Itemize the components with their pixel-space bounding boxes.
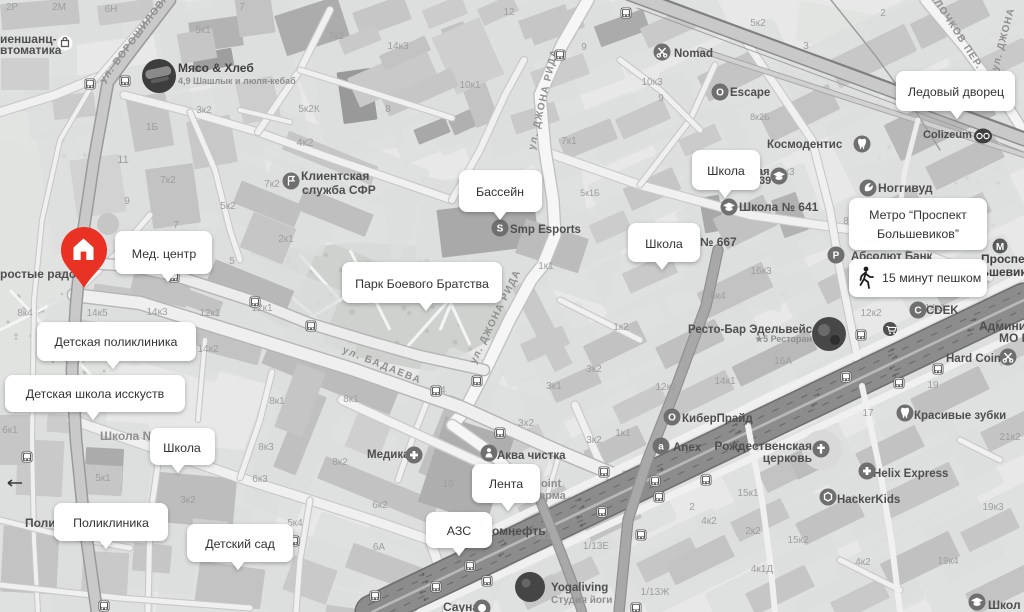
- svg-text:3к1: 3к1: [546, 381, 562, 392]
- svg-text:16А: 16А: [774, 356, 792, 367]
- svg-text:Детская поликлиника: Детская поликлиника: [55, 335, 178, 349]
- svg-text:HackerKids: HackerKids: [837, 494, 900, 506]
- svg-text:9: 9: [581, 42, 587, 53]
- svg-text:Космодентис: Космодентис: [767, 139, 843, 151]
- svg-text:4,9 Шашлык и люля-кебаб: 4,9 Шашлык и люля-кебаб: [178, 76, 296, 86]
- svg-text:4к2: 4к2: [296, 137, 313, 149]
- svg-text:М: М: [996, 242, 1004, 253]
- svg-text:1к1: 1к1: [538, 261, 554, 272]
- svg-text:10к3: 10к3: [641, 77, 662, 88]
- svg-text:Smp Esports: Smp Esports: [510, 224, 581, 236]
- svg-text:12к2: 12к2: [860, 308, 881, 319]
- svg-text:втоматика: втоматика: [0, 43, 62, 57]
- svg-text:11: 11: [117, 154, 128, 166]
- svg-text:5: 5: [229, 256, 235, 267]
- svg-text:Детский сад: Детский сад: [205, 537, 275, 551]
- svg-text:Студия йоги: Студия йоги: [551, 595, 612, 606]
- svg-text:Большевиков”: Большевиков”: [877, 227, 959, 241]
- svg-text:Школ: Школ: [988, 598, 1021, 612]
- svg-text:КиберПрайд: КиберПрайд: [682, 413, 753, 425]
- svg-text:oint: oint: [541, 478, 561, 490]
- svg-text:Бассейн: Бассейн: [476, 185, 524, 199]
- svg-text:Парк Боевого Братства: Парк Боевого Братства: [355, 277, 489, 291]
- svg-text:Ледовый дворец: Ледовый дворец: [908, 85, 1004, 99]
- svg-text:O: O: [668, 413, 676, 424]
- svg-text:19к4: 19к4: [937, 556, 958, 567]
- svg-text:Nomad: Nomad: [674, 48, 713, 60]
- svg-text:6к1: 6к1: [2, 425, 18, 436]
- svg-text:Клиентская: Клиентская: [301, 169, 369, 183]
- svg-text:Ноггивуд: Ноггивуд: [878, 181, 933, 195]
- svg-text:Школа: Школа: [645, 237, 683, 251]
- svg-text:9: 9: [124, 196, 130, 207]
- svg-text:8к4: 8к4: [17, 308, 33, 319]
- svg-text:6к2: 6к2: [372, 500, 388, 511]
- svg-text:Детская школа исскуств: Детская школа исскуств: [26, 387, 165, 401]
- svg-text:2М: 2М: [52, 2, 66, 13]
- svg-text:O: O: [716, 88, 724, 99]
- svg-text:Мясо & Хлеб: Мясо & Хлеб: [178, 61, 254, 75]
- svg-text:2: 2: [880, 8, 886, 19]
- svg-text:12к2: 12к2: [655, 382, 676, 393]
- svg-text:Colizeum: Colizeum: [923, 129, 972, 141]
- svg-text:4к2: 4к2: [701, 516, 717, 527]
- svg-text:14к5: 14к5: [86, 308, 107, 319]
- svg-text:5к1: 5к1: [195, 25, 211, 36]
- svg-text:1к1: 1к1: [615, 428, 631, 439]
- svg-text:7к2: 7к2: [160, 175, 176, 186]
- svg-text:CDEK: CDEK: [926, 305, 959, 317]
- svg-text:Helix Express: Helix Express: [873, 468, 948, 480]
- svg-text:5к1Б: 5к1Б: [580, 188, 600, 198]
- svg-text:a: a: [658, 442, 664, 453]
- svg-text:4к1Д: 4к1Д: [751, 564, 773, 575]
- svg-text:1/13Ж: 1/13Ж: [641, 587, 670, 598]
- svg-text:Escape: Escape: [730, 87, 770, 99]
- svg-text:14к3: 14к3: [146, 307, 167, 318]
- svg-text:№ 667: № 667: [700, 235, 737, 249]
- svg-text:14к3: 14к3: [387, 41, 408, 52]
- svg-text:19к3: 19к3: [982, 502, 1003, 513]
- svg-text:3х2: 3х2: [518, 418, 535, 429]
- svg-text:14к1: 14к1: [714, 376, 735, 387]
- svg-text:МО Н: МО Н: [999, 331, 1024, 345]
- svg-text:Лента: Лента: [489, 477, 523, 491]
- svg-text:Красивые зубки: Красивые зубки: [914, 410, 1006, 422]
- svg-text:Hard Coin: Hard Coin: [946, 353, 1001, 365]
- svg-text:Anex: Anex: [673, 442, 702, 454]
- svg-text:8к2Б: 8к2Б: [750, 112, 770, 122]
- svg-text:Медика: Медика: [367, 449, 410, 461]
- svg-text:АЗС: АЗС: [447, 524, 471, 538]
- svg-text:12к1: 12к1: [199, 308, 220, 319]
- svg-text:16к3: 16к3: [750, 266, 771, 277]
- svg-text:15к2: 15к2: [787, 535, 808, 546]
- svg-text:ерма: ерма: [539, 490, 567, 502]
- svg-text:Аква чистка: Аква чистка: [497, 450, 566, 462]
- svg-text:7к2: 7к2: [328, 31, 344, 42]
- svg-text:3: 3: [803, 41, 809, 52]
- svg-text:Метро “Проспект: Метро “Проспект: [869, 208, 967, 222]
- svg-text:Школа N: Школа N: [100, 429, 151, 443]
- svg-text:10: 10: [442, 479, 454, 490]
- svg-text:5к2К: 5к2К: [298, 104, 319, 115]
- svg-text:3к2: 3к2: [586, 435, 602, 446]
- svg-text:P: P: [833, 251, 840, 262]
- svg-text:3к2: 3к2: [586, 364, 602, 375]
- svg-text:Школа: Школа: [163, 441, 201, 455]
- svg-text:Школа № 641: Школа № 641: [739, 200, 819, 214]
- svg-text:6А: 6А: [373, 542, 386, 553]
- svg-text:8: 8: [385, 104, 391, 115]
- svg-text:19: 19: [927, 380, 939, 391]
- svg-text:8к2: 8к2: [332, 457, 348, 468]
- svg-text:C: C: [914, 306, 921, 317]
- svg-text:3к2: 3к2: [180, 495, 196, 506]
- svg-text:церковь: церковь: [763, 451, 812, 465]
- svg-text:7: 7: [239, 2, 245, 13]
- svg-text:1/13Е: 1/13Е: [583, 541, 609, 552]
- svg-text:служба СФР: служба СФР: [302, 183, 376, 197]
- svg-text:1к2: 1к2: [613, 322, 629, 333]
- svg-text:5к2: 5к2: [750, 18, 766, 29]
- svg-text:2к1: 2к1: [278, 234, 294, 245]
- svg-text:7к2: 7к2: [264, 179, 280, 190]
- svg-text:6к4: 6к4: [710, 291, 726, 302]
- svg-text:7: 7: [173, 220, 179, 231]
- svg-text:2: 2: [689, 502, 695, 513]
- svg-text:★5 Ресторан: ★5 Ресторан: [755, 334, 812, 344]
- svg-text:8: 8: [843, 216, 849, 227]
- svg-text:5к1: 5к1: [95, 473, 111, 484]
- svg-text:14к2: 14к2: [197, 344, 218, 355]
- svg-text:15к1: 15к1: [737, 488, 758, 499]
- svg-text:S: S: [497, 224, 504, 235]
- svg-text:6Н: 6Н: [105, 4, 118, 15]
- svg-text:12: 12: [503, 7, 515, 18]
- svg-text:омнефть: омнефть: [492, 524, 546, 538]
- svg-text:8к3: 8к3: [258, 442, 274, 453]
- svg-text:9: 9: [658, 93, 664, 104]
- svg-text:21к2: 21к2: [999, 432, 1020, 443]
- svg-text:39: 39: [759, 175, 771, 187]
- svg-text:1Б: 1Б: [146, 122, 159, 133]
- svg-text:3к2: 3к2: [196, 105, 212, 116]
- svg-text:2Р: 2Р: [6, 2, 19, 13]
- svg-text:Школа: Школа: [707, 164, 745, 178]
- svg-text:8к1: 8к1: [343, 394, 359, 405]
- svg-text:Проспект: Проспект: [981, 252, 1024, 266]
- svg-text:7к1: 7к1: [561, 136, 577, 147]
- svg-text:ростые радо: ростые радо: [0, 267, 76, 281]
- svg-text:6к3: 6к3: [252, 474, 268, 485]
- svg-text:Мед. центр: Мед. центр: [132, 247, 197, 261]
- svg-text:4к2: 4к2: [855, 557, 871, 568]
- svg-text:2к2: 2к2: [745, 526, 761, 537]
- svg-text:Поликлиника: Поликлиника: [73, 516, 149, 530]
- svg-text:17: 17: [862, 408, 874, 419]
- svg-text:15 минут пешком: 15 минут пешком: [882, 271, 981, 285]
- svg-text:10к1: 10к1: [459, 80, 480, 91]
- svg-text:Поли: Поли: [25, 516, 56, 530]
- svg-text:8к1: 8к1: [269, 396, 285, 407]
- svg-text:5к2: 5к2: [220, 201, 236, 212]
- svg-text:Yogaliving: Yogaliving: [551, 582, 608, 594]
